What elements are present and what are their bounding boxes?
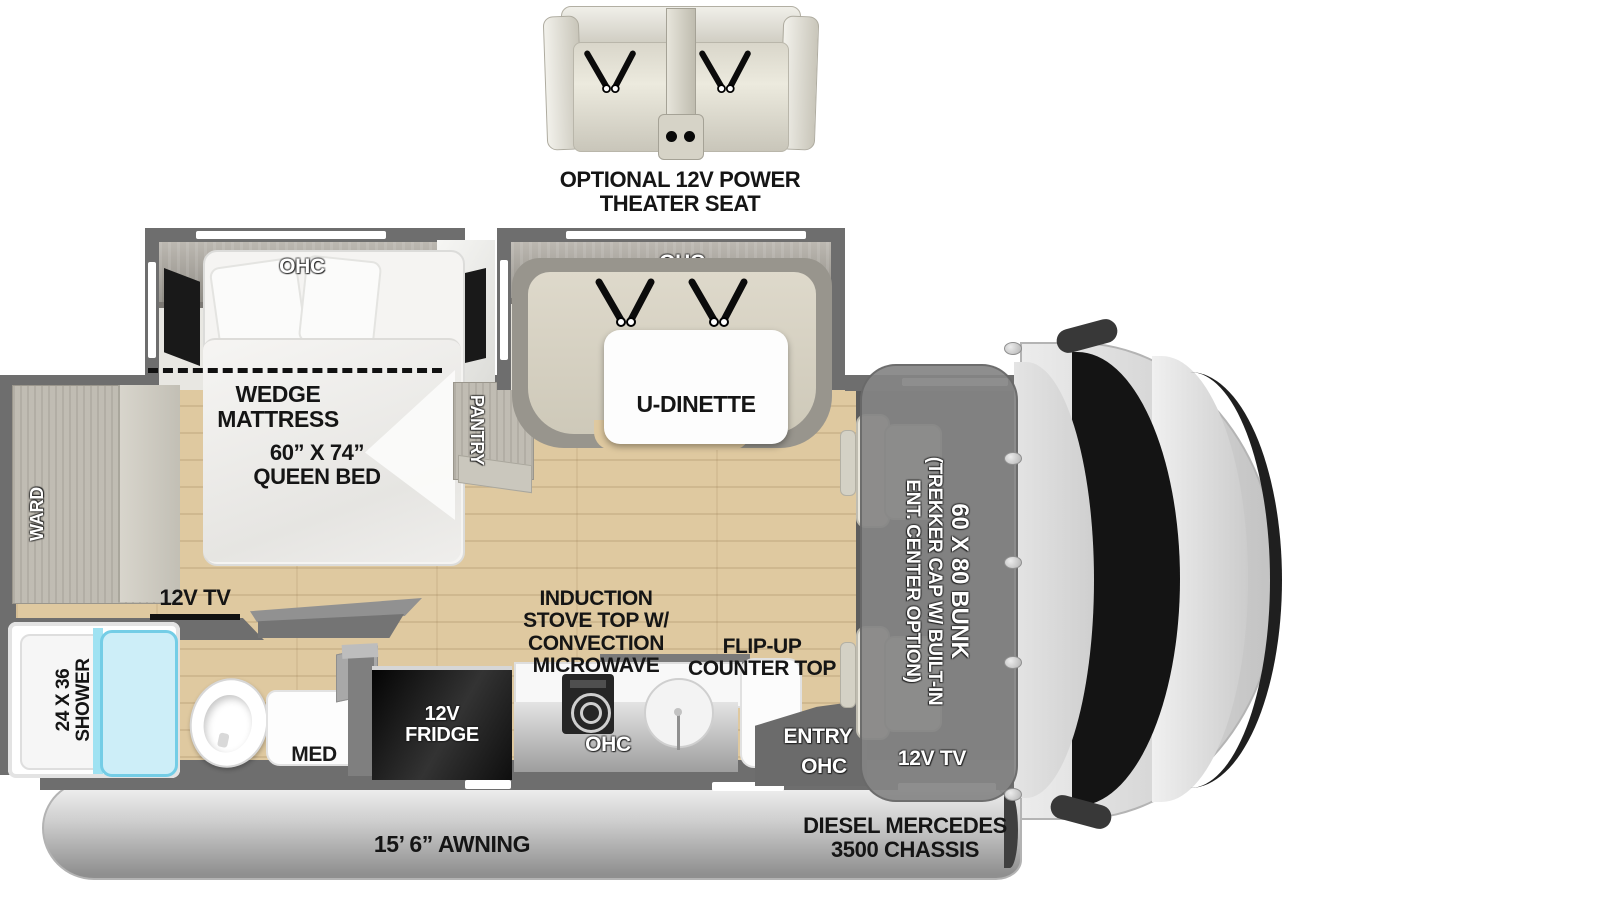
front-bumper [1190,372,1282,788]
seatbelt-icon [585,276,665,330]
wardrobe-side [118,385,180,602]
fridge-label: 12V FRIDGE [405,704,479,746]
queen-bed-label: 60” X 74” QUEEN BED [232,441,402,488]
stove-label: INDUCTION STOVE TOP W/ CONVECTION MICROW… [508,588,684,678]
rv-floorplan: 15’ 6” AWNING DIESEL MERCEDES 3500 CHASS… [0,0,1600,900]
kitchen-partition-cap [342,643,379,659]
entry-label: ENTRY [776,726,860,748]
sink-icon [644,678,714,748]
ward-label: WARD [0,479,95,549]
driver-seat-headrest [840,430,856,496]
dinette-table: U-DINETTE [604,330,788,444]
passenger-seat-headrest [840,642,856,708]
rivet-icon [1004,342,1022,355]
bedroom-tv-label: 12V TV [150,586,240,610]
bunk-size-label: 60 X 80 BUNK [945,503,973,658]
pantry-label: PANTRY [429,404,525,456]
fridge: 12V FRIDGE [372,666,512,780]
seatbelt-icon [678,276,758,330]
chassis-label: DIESEL MERCEDES 3500 CHASSIS [800,814,1010,861]
bunk-option-label-1: (TREKKER CAP W/ BUILT-IN [923,457,945,706]
theater-seat-label: OPTIONAL 12V POWER THEATER SEAT [518,168,842,215]
entry-ohc-label: OHC [790,756,858,778]
seatbelt-icon [690,48,760,96]
u-dinette-label: U-DINETTE [636,391,755,418]
kitchen-partition [348,652,374,776]
window-slot [148,262,156,358]
awning-label: 15’ 6” AWNING [352,832,552,857]
tv-icon [164,268,200,366]
bunk-label: 60 X 80 BUNK (TREKKER CAP W/ BUILT-IN EN… [862,366,1012,796]
cupholder-icon [658,114,704,160]
wedge-fold-line [148,368,442,373]
kitchen-ohc-label: OHC [566,734,650,756]
seatbelt-icon [575,48,645,96]
flip-up-counter-label: FLIP-UP COUNTER TOP [686,636,838,681]
rivet-icon [1004,656,1022,669]
rivet-icon [1004,452,1022,465]
shower-label: 24 X 36 SHOWER [4,644,144,756]
med-cabinet-label: MED [278,744,350,766]
bedroom-ohc-label: OHC [258,256,346,278]
window-slot [566,231,806,239]
cab-tv-label: 12V TV [880,748,984,770]
rivet-icon [1004,556,1022,569]
induction-stove-icon [562,674,614,734]
window-slot [196,231,386,239]
tv-label-underline [150,614,240,620]
wedge-mattress-label: WEDGE MATTRESS [172,382,384,431]
window-slot [465,780,511,789]
window-slot [500,260,508,360]
bunk-option-label-2: ENT. CENTER OPTION) [901,479,923,682]
rivet-icon [1004,788,1022,801]
